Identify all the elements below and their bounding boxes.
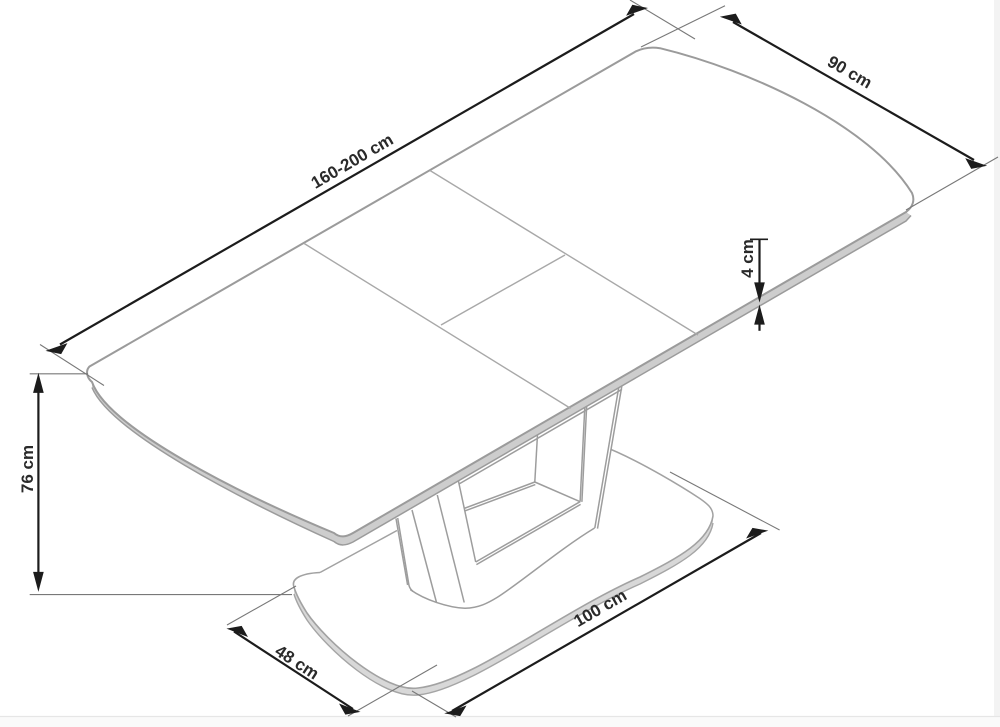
svg-text:76 cm: 76 cm — [18, 445, 37, 493]
svg-text:4 cm: 4 cm — [738, 239, 757, 278]
